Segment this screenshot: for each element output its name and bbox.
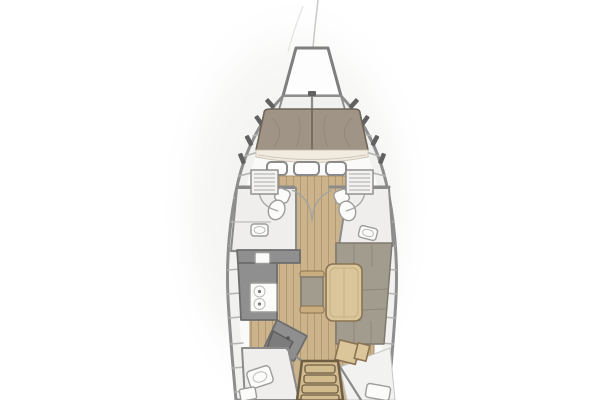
faucet — [286, 336, 290, 340]
floor-plan-canvas — [0, 0, 600, 400]
deck-hatch — [326, 162, 346, 175]
floor-plan — [0, 0, 600, 400]
stool — [300, 271, 324, 313]
stove-two-burners — [250, 283, 277, 312]
salon-table — [326, 264, 362, 321]
deck-hatches — [267, 162, 346, 175]
head-starboard — [332, 188, 393, 246]
hanging-locker-starboard — [346, 170, 373, 194]
windlass — [308, 91, 316, 96]
companionway-steps — [297, 361, 343, 400]
fridge-lid — [255, 253, 270, 264]
washbasin-port — [251, 224, 268, 236]
head-port — [231, 187, 296, 251]
deck-hatch — [294, 162, 319, 175]
hanging-locker-port — [251, 170, 278, 194]
